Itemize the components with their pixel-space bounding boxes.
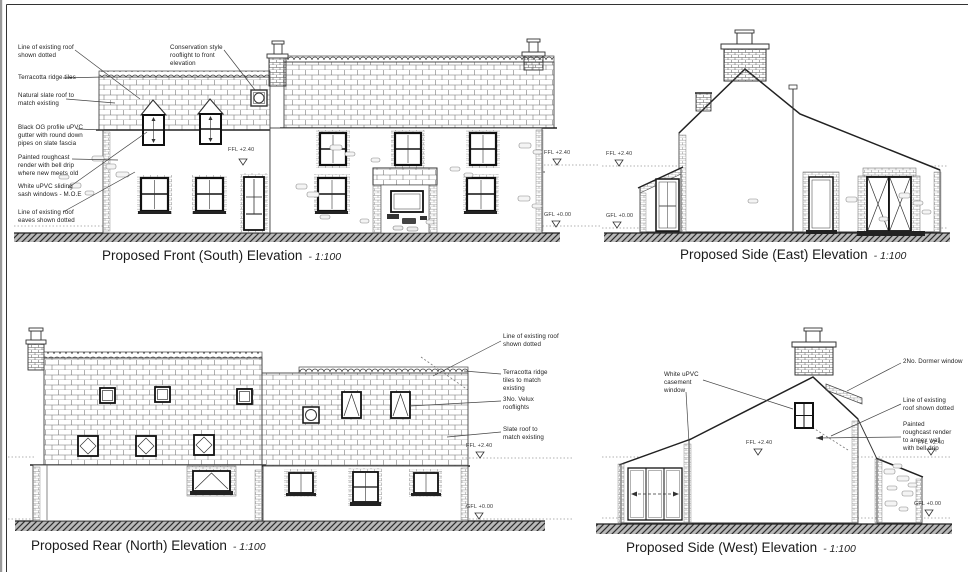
sash-window [467,178,495,211]
dormer-window-2 [200,114,221,144]
east-ffl-level: FFL +2.40 [606,151,632,157]
front-gfl-level: GFL +0.00 [544,212,571,218]
velux-rooflights-square [78,435,214,456]
east-leanto [638,167,683,232]
rear-title: Proposed Rear (North) Elevation- 1:100 [31,538,266,553]
front-ffl-level: FFL +2.40 [544,150,570,156]
conservation-rooflight [251,90,267,106]
west-title: Proposed Side (West) Elevation- 1:100 [626,540,856,555]
front-label-render: Painted roughcast render with bell drip … [18,154,84,178]
rear-ffl-level: FFL +2.40 [466,443,492,449]
west-label-dormer: 2No. Dormer window [903,358,965,366]
rear-label-existing-roof: Line of existing roof shown dotted [503,333,559,349]
front-title: Proposed Front (South) Elevation- 1:100 [102,248,341,263]
west-annex [875,458,923,523]
east-gfl-level: GFL +0.00 [606,213,633,219]
west-title-text: Proposed Side (West) Elevation [626,540,817,555]
casement-window [795,403,813,428]
rear-round-rooflight [303,407,319,423]
sash-window [470,133,496,165]
rear-elevation [8,328,572,531]
rear-window-1 [289,473,313,493]
west-ffl-mid-level: FFL +2.40 [746,440,772,446]
west-label-render: Painted roughcast render to annex wall w… [903,421,953,453]
east-title-scale: - 1:100 [874,250,907,262]
front-label-existing-roof: Line of existing roof shown dotted [18,44,88,60]
sash-window [395,133,421,165]
front-label-gutter: Black OG profile uPVC gutter with round … [18,124,90,148]
elevations-linework [0,0,968,572]
east-elevation [602,30,950,242]
east-title-text: Proposed Side (East) Elevation [680,247,868,262]
front-label-eaves: Line of existing roof eaves shown dotted [18,209,80,225]
front-title-text: Proposed Front (South) Elevation [102,248,302,263]
sash-window [141,178,168,211]
rear-label-velux: 3No. Velux rooflights [503,396,547,412]
west-title-scale: - 1:100 [823,543,856,555]
west-label-casement: White uPVC casement window [664,371,704,395]
sash-window [196,178,223,211]
front-label-slate-roof: Natural slate roof to match existing [18,92,76,108]
drawing-sheet: Line of existing roof shown dotted Terra… [0,0,968,572]
dormer-window-1 [143,115,164,145]
rear-title-scale: - 1:100 [233,541,266,553]
chimney-rear [26,328,46,370]
rear-label-slate-roof: Slate roof to match existing [503,426,553,442]
front-label-rooflight: Conservation style rooflight to front el… [170,44,224,68]
front-label-sash-windows: White uPVC sliding sash windows - M.O.E [18,183,88,199]
rear-wall-window [187,466,236,496]
rear-gfl-level: GFL +0.00 [466,504,493,510]
west-sunroom [618,439,691,523]
west-label-existing-roof: Line of existing roof shown dotted [903,397,955,413]
rear-window-2 [353,472,378,502]
chimney-right [522,39,545,70]
sash-window [318,178,346,211]
front-elevation [14,39,600,242]
rear-window-3 [414,473,438,493]
east-title: Proposed Side (East) Elevation- 1:100 [680,247,906,262]
chimney-mid [267,41,288,86]
east-door [803,172,839,234]
front-door-extension [244,177,264,230]
rear-title-text: Proposed Rear (North) Elevation [31,538,227,553]
west-elevation [596,328,952,534]
west-gfl-level: GFL +0.00 [914,501,941,507]
chimney-east [721,30,769,81]
rear-label-ridge-tiles: Terracotta ridge tiles to match existing [503,369,557,393]
front-ffl-mid-level: FFL +2.40 [228,147,254,153]
west-ffl-level: FFL +2.40 [918,440,944,446]
front-label-ridge-tiles: Terracotta ridge tiles [18,74,80,82]
chimney-west [792,328,836,375]
front-title-scale: - 1:100 [308,251,341,263]
